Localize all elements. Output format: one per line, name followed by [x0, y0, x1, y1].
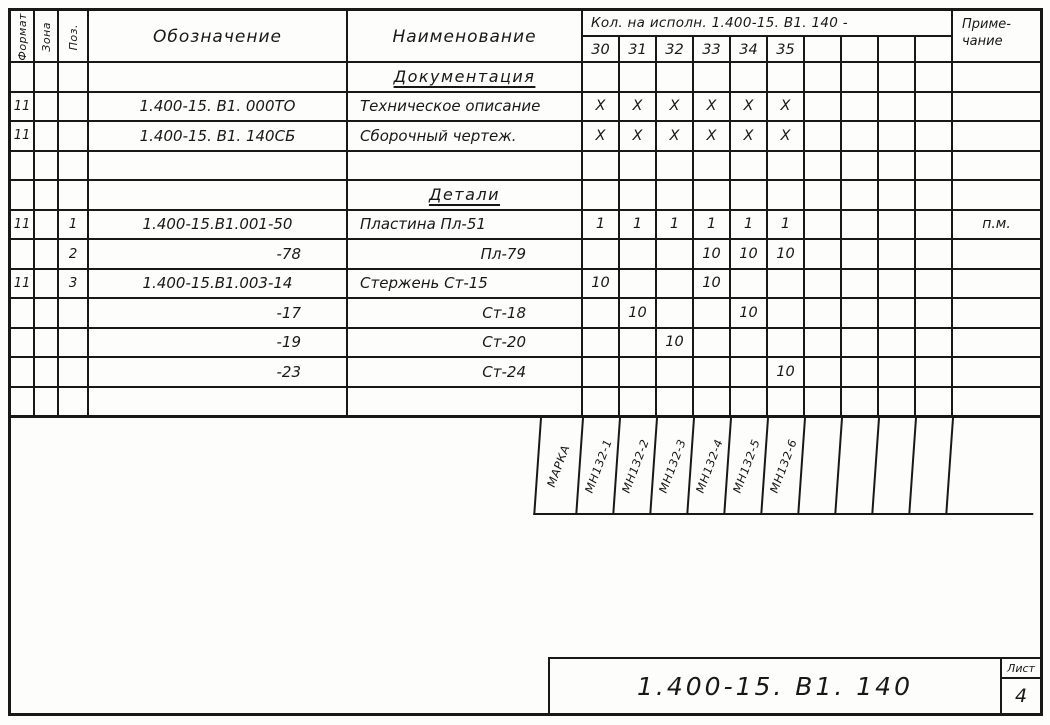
pos-cell — [59, 181, 89, 209]
qty-cell — [879, 299, 916, 327]
qty-cell — [768, 299, 805, 327]
spec-table-header: Формат Зона Поз. Обозначение Наименовани… — [11, 11, 1040, 63]
marka-label: МАРКА — [544, 443, 573, 488]
qty-cell — [657, 299, 694, 327]
item-row: 2-78Пл-79101010 — [11, 240, 1040, 270]
name-cell: Ст-18 — [348, 299, 583, 327]
qty-cell: X — [583, 93, 620, 121]
qty-cell — [583, 152, 620, 180]
section-title: Детали — [348, 181, 583, 209]
qty-cell — [842, 299, 879, 327]
qty-cell — [916, 211, 953, 239]
qty-cell — [657, 388, 694, 416]
item-row: -19Ст-2010 — [11, 329, 1040, 359]
qty-cell — [842, 240, 879, 268]
qty-cell: 10 — [694, 270, 731, 298]
qty-cell — [916, 270, 953, 298]
marka-cell-text: МН132-4 — [693, 437, 726, 494]
qty-cell — [842, 270, 879, 298]
pos-cell — [59, 329, 89, 357]
qty-col-header — [805, 37, 842, 63]
zone-cell — [35, 388, 59, 416]
qty-cell — [768, 388, 805, 416]
qty-cell — [916, 63, 953, 91]
qty-cell — [879, 122, 916, 150]
marka-cell-text: МН132-5 — [730, 437, 763, 494]
name-cell: Стержень Ст-15 — [348, 270, 583, 298]
format-cell — [11, 152, 35, 180]
col-header-format-label: Формат — [16, 13, 29, 61]
zone-cell — [35, 93, 59, 121]
sheet-number: 4 — [1002, 679, 1040, 713]
qty-cell: X — [694, 122, 731, 150]
marka-cell-text: МН132-2 — [619, 437, 652, 494]
qty-cell — [694, 63, 731, 91]
qty-cell: 1 — [694, 211, 731, 239]
item-row: -23Ст-2410 — [11, 358, 1040, 388]
drawing-frame: Формат Зона Поз. Обозначение Наименовани… — [8, 8, 1043, 716]
sheet-number-block: Лист 4 — [1002, 659, 1040, 713]
qty-cell — [879, 181, 916, 209]
qty-cell — [879, 388, 916, 416]
qty-cell — [620, 152, 657, 180]
qty-col-header: 35 — [768, 37, 805, 63]
pos-cell — [59, 358, 89, 386]
col-header-zone: Зона — [35, 11, 59, 63]
qty-cell: 10 — [583, 270, 620, 298]
marka-cell-text: МН132-3 — [656, 437, 689, 494]
empty-row — [11, 388, 1040, 418]
note-cell — [953, 240, 1040, 268]
qty-col-header — [916, 37, 953, 63]
designation-cell: 1.400-15.В1.003-14 — [89, 270, 348, 298]
qty-cell — [657, 181, 694, 209]
qty-cell — [694, 152, 731, 180]
qty-cell — [583, 329, 620, 357]
qty-cell — [620, 388, 657, 416]
designation-cell — [89, 388, 348, 416]
qty-cell: 10 — [731, 299, 768, 327]
qty-cell — [842, 63, 879, 91]
qty-cell — [916, 122, 953, 150]
pos-cell — [59, 388, 89, 416]
marka-label-cell: МАРКА — [535, 418, 584, 513]
qty-cell — [583, 63, 620, 91]
qty-cell: X — [620, 93, 657, 121]
section-row: Детали — [11, 181, 1040, 211]
qty-cell — [916, 358, 953, 386]
qty-cell: 10 — [731, 240, 768, 268]
qty-cell: X — [731, 93, 768, 121]
qty-cell — [694, 388, 731, 416]
pos-cell: 3 — [59, 270, 89, 298]
col-header-name: Наименование — [348, 11, 583, 63]
qty-cell — [916, 299, 953, 327]
pos-cell: 2 — [59, 240, 89, 268]
qty-cell — [694, 358, 731, 386]
note-cell — [953, 388, 1040, 416]
qty-col-header: 32 — [657, 37, 694, 63]
note-cell — [953, 181, 1040, 209]
qty-cell — [768, 152, 805, 180]
qty-cell — [805, 329, 842, 357]
spec-table: Формат Зона Поз. Обозначение Наименовани… — [11, 11, 1040, 418]
designation-cell: 1.400-15.В1.001-50 — [89, 211, 348, 239]
section-title: Документация — [348, 63, 583, 91]
qty-cell — [842, 329, 879, 357]
zone-cell — [35, 63, 59, 91]
qty-col-header: 31 — [620, 37, 657, 63]
zone-cell — [35, 329, 59, 357]
format-cell: 11 — [11, 211, 35, 239]
qty-cell — [916, 152, 953, 180]
qty-cell — [620, 358, 657, 386]
qty-cell — [842, 152, 879, 180]
doc-number: 1.400-15. В1. 140 — [550, 659, 1002, 713]
designation-cell — [89, 152, 348, 180]
qty-cell — [842, 122, 879, 150]
format-cell — [11, 240, 35, 268]
qty-cell — [879, 211, 916, 239]
zone-cell — [35, 122, 59, 150]
format-cell: 11 — [11, 122, 35, 150]
qty-cell: 10 — [694, 240, 731, 268]
qty-cell — [916, 93, 953, 121]
designation-cell: -19 — [89, 329, 348, 357]
qty-cell — [583, 388, 620, 416]
format-cell — [11, 63, 35, 91]
qty-cell: X — [768, 93, 805, 121]
format-cell — [11, 388, 35, 416]
marka-row: МАРКАМН132-1МН132-2МН132-3МН132-4МН132-5… — [533, 418, 1040, 515]
qty-col-header — [879, 37, 916, 63]
qty-cell: X — [657, 93, 694, 121]
qty-cell: 10 — [657, 329, 694, 357]
qty-cell: X — [657, 122, 694, 150]
qty-cell — [805, 181, 842, 209]
format-cell — [11, 299, 35, 327]
qty-cell — [731, 270, 768, 298]
note-cell — [953, 329, 1040, 357]
note-cell — [953, 63, 1040, 91]
name-cell: Пл-79 — [348, 240, 583, 268]
qty-cell — [842, 388, 879, 416]
note-cell: п.м. — [953, 211, 1040, 239]
qty-cell — [842, 211, 879, 239]
qty-cell: 1 — [657, 211, 694, 239]
qty-cell — [620, 181, 657, 209]
col-header-pos-label: Поз. — [67, 24, 80, 50]
format-cell: 11 — [11, 270, 35, 298]
pos-cell — [59, 93, 89, 121]
qty-cell — [879, 270, 916, 298]
item-row: 1111.400-15.В1.001-50Пластина Пл-5111111… — [11, 211, 1040, 241]
qty-cell: X — [620, 122, 657, 150]
designation-cell: -17 — [89, 299, 348, 327]
qty-col-header — [842, 37, 879, 63]
qty-cell — [842, 93, 879, 121]
qty-cell: X — [694, 93, 731, 121]
qty-cell: 1 — [731, 211, 768, 239]
qty-cell: 10 — [768, 358, 805, 386]
qty-cell — [657, 270, 694, 298]
name-cell — [348, 388, 583, 416]
qty-cell — [657, 63, 694, 91]
qty-cell — [768, 270, 805, 298]
zone-cell — [35, 270, 59, 298]
pos-cell: 1 — [59, 211, 89, 239]
qty-cell — [731, 152, 768, 180]
qty-cell — [916, 240, 953, 268]
qty-cell — [694, 299, 731, 327]
qty-cell — [583, 181, 620, 209]
qty-cell — [620, 270, 657, 298]
qty-cell — [583, 299, 620, 327]
qty-group-header: Кол. на исполн. 1.400-15. В1. 140 - — [583, 11, 953, 37]
qty-cell — [879, 358, 916, 386]
qty-cell — [879, 240, 916, 268]
item-row: 111.400-15. В1. 140СБСборочный чертеж.XX… — [11, 122, 1040, 152]
qty-cell — [805, 270, 842, 298]
qty-cell — [805, 152, 842, 180]
qty-cell — [620, 329, 657, 357]
qty-cell — [805, 211, 842, 239]
col-header-zone-label: Зона — [40, 22, 53, 52]
designation-cell: -23 — [89, 358, 348, 386]
qty-cell — [805, 299, 842, 327]
qty-cell: 1 — [583, 211, 620, 239]
qty-cell — [657, 240, 694, 268]
sheet-label: Лист — [1002, 659, 1040, 679]
qty-cell — [879, 63, 916, 91]
note-cell — [953, 358, 1040, 386]
section-row: Документация — [11, 63, 1040, 93]
format-cell — [11, 181, 35, 209]
qty-cell — [842, 358, 879, 386]
format-cell — [11, 358, 35, 386]
qty-cell — [805, 240, 842, 268]
qty-cell — [805, 388, 842, 416]
zone-cell — [35, 211, 59, 239]
qty-cell — [657, 152, 694, 180]
qty-cell — [731, 63, 768, 91]
qty-cell — [620, 240, 657, 268]
zone-cell — [35, 240, 59, 268]
format-cell: 11 — [11, 93, 35, 121]
name-cell: Техническое описание — [348, 93, 583, 121]
item-row: -17Ст-181010 — [11, 299, 1040, 329]
title-block: 1.400-15. В1. 140 Лист 4 — [548, 657, 1040, 713]
qty-cell: X — [768, 122, 805, 150]
pos-cell — [59, 152, 89, 180]
qty-cell — [731, 388, 768, 416]
qty-col-header: 33 — [694, 37, 731, 63]
item-row: 111.400-15. В1. 000ТОТехническое описани… — [11, 93, 1040, 123]
qty-cell — [879, 93, 916, 121]
name-cell: Ст-20 — [348, 329, 583, 357]
qty-cell: 10 — [768, 240, 805, 268]
qty-cell — [731, 329, 768, 357]
note-cell — [953, 152, 1040, 180]
designation-cell: 1.400-15. В1. 000ТО — [89, 93, 348, 121]
col-header-format: Формат — [11, 11, 35, 63]
col-header-pos: Поз. — [59, 11, 89, 63]
qty-cell — [768, 181, 805, 209]
designation-cell: -78 — [89, 240, 348, 268]
name-cell — [348, 152, 583, 180]
qty-cell — [916, 181, 953, 209]
pos-cell — [59, 63, 89, 91]
qty-cell — [879, 152, 916, 180]
zone-cell — [35, 358, 59, 386]
item-row: 1131.400-15.В1.003-14Стержень Ст-151010 — [11, 270, 1040, 300]
qty-cell: 1 — [768, 211, 805, 239]
qty-cell — [805, 122, 842, 150]
name-cell: Пластина Пл-51 — [348, 211, 583, 239]
marka-cell-text: МН132-6 — [767, 437, 800, 494]
note-cell — [953, 122, 1040, 150]
qty-cell — [694, 329, 731, 357]
pos-cell — [59, 122, 89, 150]
qty-cell: 1 — [620, 211, 657, 239]
designation-cell: 1.400-15. В1. 140СБ — [89, 122, 348, 150]
note-cell — [953, 93, 1040, 121]
qty-cell — [694, 181, 731, 209]
note-cell — [953, 299, 1040, 327]
qty-cell — [805, 93, 842, 121]
qty-cell — [731, 181, 768, 209]
qty-cell — [916, 329, 953, 357]
qty-cell: X — [731, 122, 768, 150]
qty-cell — [620, 63, 657, 91]
zone-cell — [35, 299, 59, 327]
note-cell — [953, 270, 1040, 298]
col-header-designation: Обозначение — [89, 11, 348, 63]
qty-cell — [583, 358, 620, 386]
qty-cell — [768, 329, 805, 357]
pos-cell — [59, 299, 89, 327]
designation-cell — [89, 181, 348, 209]
name-cell: Сборочный чертеж. — [348, 122, 583, 150]
format-cell — [11, 329, 35, 357]
zone-cell — [35, 152, 59, 180]
name-cell: Ст-24 — [348, 358, 583, 386]
qty-col-header: 34 — [731, 37, 768, 63]
qty-cell — [805, 63, 842, 91]
qty-cell — [879, 329, 916, 357]
spec-table-rows: Документация111.400-15. В1. 000ТОТехниче… — [11, 63, 1040, 417]
qty-cell: X — [583, 122, 620, 150]
qty-cell — [842, 181, 879, 209]
qty-cell — [768, 63, 805, 91]
qty-col-header: 30 — [583, 37, 620, 63]
marka-note-cell — [947, 418, 1042, 513]
qty-cell — [916, 388, 953, 416]
qty-cell — [583, 240, 620, 268]
zone-cell — [35, 181, 59, 209]
empty-row — [11, 152, 1040, 182]
qty-cell — [805, 358, 842, 386]
qty-cell — [657, 358, 694, 386]
qty-cell: 10 — [620, 299, 657, 327]
marka-cell-text: МН132-1 — [582, 437, 615, 494]
col-header-note: Приме- чание — [953, 11, 1040, 63]
qty-cell — [731, 358, 768, 386]
designation-cell — [89, 63, 348, 91]
